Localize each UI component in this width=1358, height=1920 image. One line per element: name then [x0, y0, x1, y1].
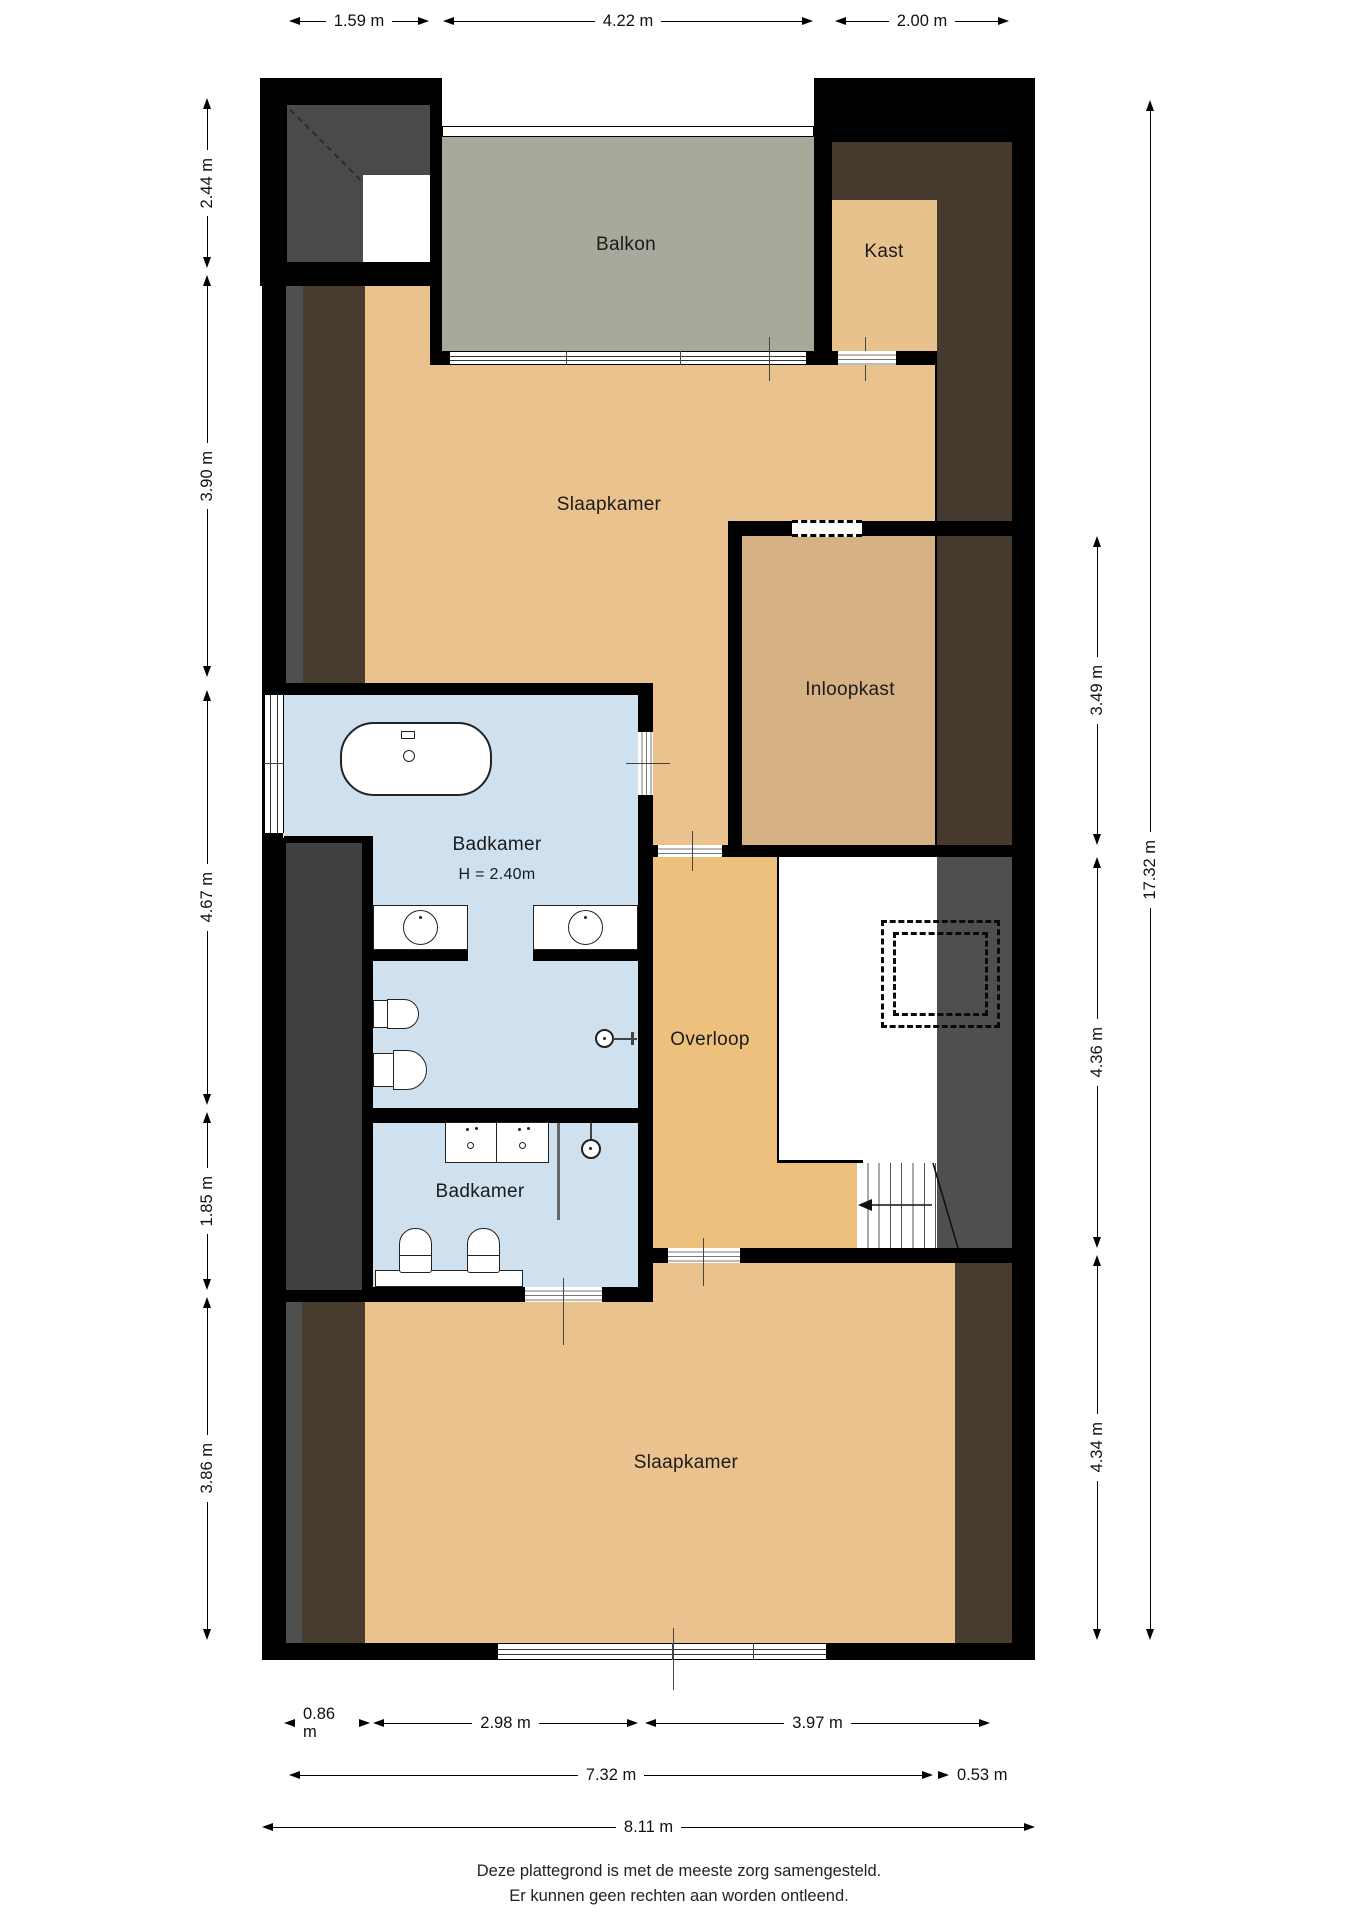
sink-tap [419, 916, 422, 919]
roof-strip-left-lower [302, 1302, 365, 1643]
roof-band-right-lower [955, 1263, 1012, 1643]
wall-inloopkast-left [728, 521, 742, 857]
bedroom-top-floor-mid [365, 521, 728, 683]
room-label-inloopkast: Inloopkast [805, 679, 895, 701]
kast-floor [832, 200, 937, 351]
toilet [399, 1228, 432, 1273]
shower-head-dot [603, 1037, 606, 1040]
wall-bathroom-top [284, 683, 653, 695]
room-note-badkamer-height: H = 2.40m [459, 866, 536, 884]
roof-strip-left-upper [303, 286, 365, 683]
wall-inloopkast-bottom [722, 845, 1012, 857]
dim-top-3: 2.00 m [835, 12, 1009, 30]
door-swing-mark [703, 1238, 704, 1286]
bedroom-bottom-floor-upper [653, 1263, 955, 1302]
overloop-floor-bottom [653, 1163, 857, 1248]
dim-right-3: 4.34 m [1088, 1255, 1106, 1640]
dim-bottom-total: 8.11 m [262, 1818, 1035, 1836]
dim-right-total: 17.32 m [1141, 100, 1159, 1640]
door-swing-mark [692, 831, 693, 871]
dim-right-1: 3.49 m [1088, 536, 1106, 845]
roof-band-right-upper [937, 142, 1012, 845]
dim-bottom-1b: 2.98 m [373, 1714, 638, 1732]
bidet-tank [373, 1053, 394, 1087]
wall-bathroom-right-b [638, 795, 653, 1123]
bathtub-faucet [401, 731, 415, 739]
drain-dot [519, 1142, 526, 1149]
wall-bathroom2-bottom-b [602, 1287, 653, 1302]
wall-bathroom2-bottom-a [362, 1287, 525, 1302]
wall-bathroom-left [362, 843, 373, 1123]
wall-vanity-stub-left [373, 950, 468, 961]
dim-left-3: 4.67 m [198, 690, 216, 1105]
dim-bottom-1a: 0.86 m [284, 1714, 370, 1732]
dim-left-2: 3.90 m [198, 275, 216, 677]
roof-sliver-left-upper [286, 286, 303, 683]
stairwell-edge-left [777, 857, 779, 1163]
window-balcony-bedroom [450, 351, 806, 365]
room-label-kast: Kast [864, 241, 903, 263]
wall-balcony-window-end-r [806, 351, 819, 365]
dim-top-1: 1.59 m [289, 12, 429, 30]
wall-bathroom-step [284, 836, 373, 843]
dim-left-1: 2.44 m [198, 98, 216, 268]
void-top-left [363, 175, 430, 262]
skylight-dashed-inner [893, 932, 988, 1016]
footer-disclaimer-line2: Er kunnen geen rechten aan worden ontlee… [0, 1887, 1358, 1906]
roof-sliver-left-lower [286, 1302, 302, 1643]
door-corridor-overloop [658, 845, 722, 857]
bedroom-top-floor-notch [365, 286, 430, 365]
drain-dot [467, 1142, 474, 1149]
door-inloopkast-slider [792, 520, 862, 537]
wall-balcony-left [430, 286, 442, 351]
dim-bottom-1c: 3.97 m [645, 1714, 990, 1732]
tap-dot [466, 1128, 469, 1131]
sink-tap [584, 916, 587, 919]
door-swing-mark [563, 1278, 564, 1345]
window-divider [264, 763, 284, 764]
tap-dot [475, 1127, 478, 1130]
balcony-railing [442, 126, 814, 137]
window-divider [753, 1643, 754, 1660]
window-divider [566, 351, 567, 365]
room-label-balkon: Balkon [596, 234, 656, 256]
overloop-floor [653, 857, 777, 1163]
shower-glass [557, 1123, 560, 1220]
footer-disclaimer-line1: Deze plattegrond is met de meeste zorg s… [0, 1862, 1358, 1881]
wall-balcony-window-end-l [442, 351, 450, 365]
wall-between-bathrooms [362, 1108, 653, 1123]
dim-top-2: 4.22 m [443, 12, 813, 30]
door-overloop-bedroom [668, 1248, 740, 1263]
dim-right-2: 4.36 m [1088, 857, 1106, 1248]
floor-plan: Balkon Kast Slaapkamer Inloopkast Badkam… [0, 0, 1358, 1920]
dim-bottom-2b: 0.53 m [938, 1766, 1028, 1784]
wall-inloopkast-top-b [862, 521, 1012, 536]
wall-bathroom-right-a [638, 683, 653, 732]
window-divider [680, 351, 681, 365]
room-label-badkamer-second: Badkamer [436, 1181, 525, 1203]
corridor-floor [653, 683, 728, 845]
dim-left-5: 3.86 m [198, 1297, 216, 1640]
wall-inloopkast-top-a [728, 521, 792, 536]
bathtub [340, 722, 492, 796]
dim-left-4: 1.85 m [198, 1112, 216, 1290]
window-mark [769, 337, 770, 381]
window-bathroom-left [264, 695, 284, 833]
door-kast [838, 351, 896, 365]
void-block-left-mid [286, 843, 362, 1290]
toilet-bowl [387, 999, 419, 1029]
door-swing-mark [626, 763, 670, 764]
wall-vanity-stub-right [533, 950, 638, 961]
shower-head-dot [589, 1147, 592, 1150]
toilet [467, 1228, 500, 1273]
tap-dot [527, 1127, 530, 1130]
room-label-overloop: Overloop [670, 1029, 750, 1051]
dim-bottom-2a: 7.32 m [289, 1766, 933, 1784]
wall-left-outer [262, 286, 286, 1660]
staircase-arrow [850, 1155, 970, 1255]
shower-mount [631, 1032, 634, 1045]
wall-overloop-bottom-a [653, 1248, 668, 1263]
tap-dot [518, 1128, 521, 1131]
toilet-ledge [375, 1270, 523, 1287]
room-label-badkamer-main: Badkamer [453, 834, 542, 856]
room-label-slaapkamer-bottom: Slaapkamer [634, 1452, 738, 1474]
window-bedroom-bottom [498, 1643, 826, 1660]
bathtub-drain [403, 750, 415, 762]
window-mark [673, 1628, 674, 1690]
toilet-tank [373, 1000, 388, 1028]
room-label-slaapkamer-top: Slaapkamer [557, 494, 661, 516]
